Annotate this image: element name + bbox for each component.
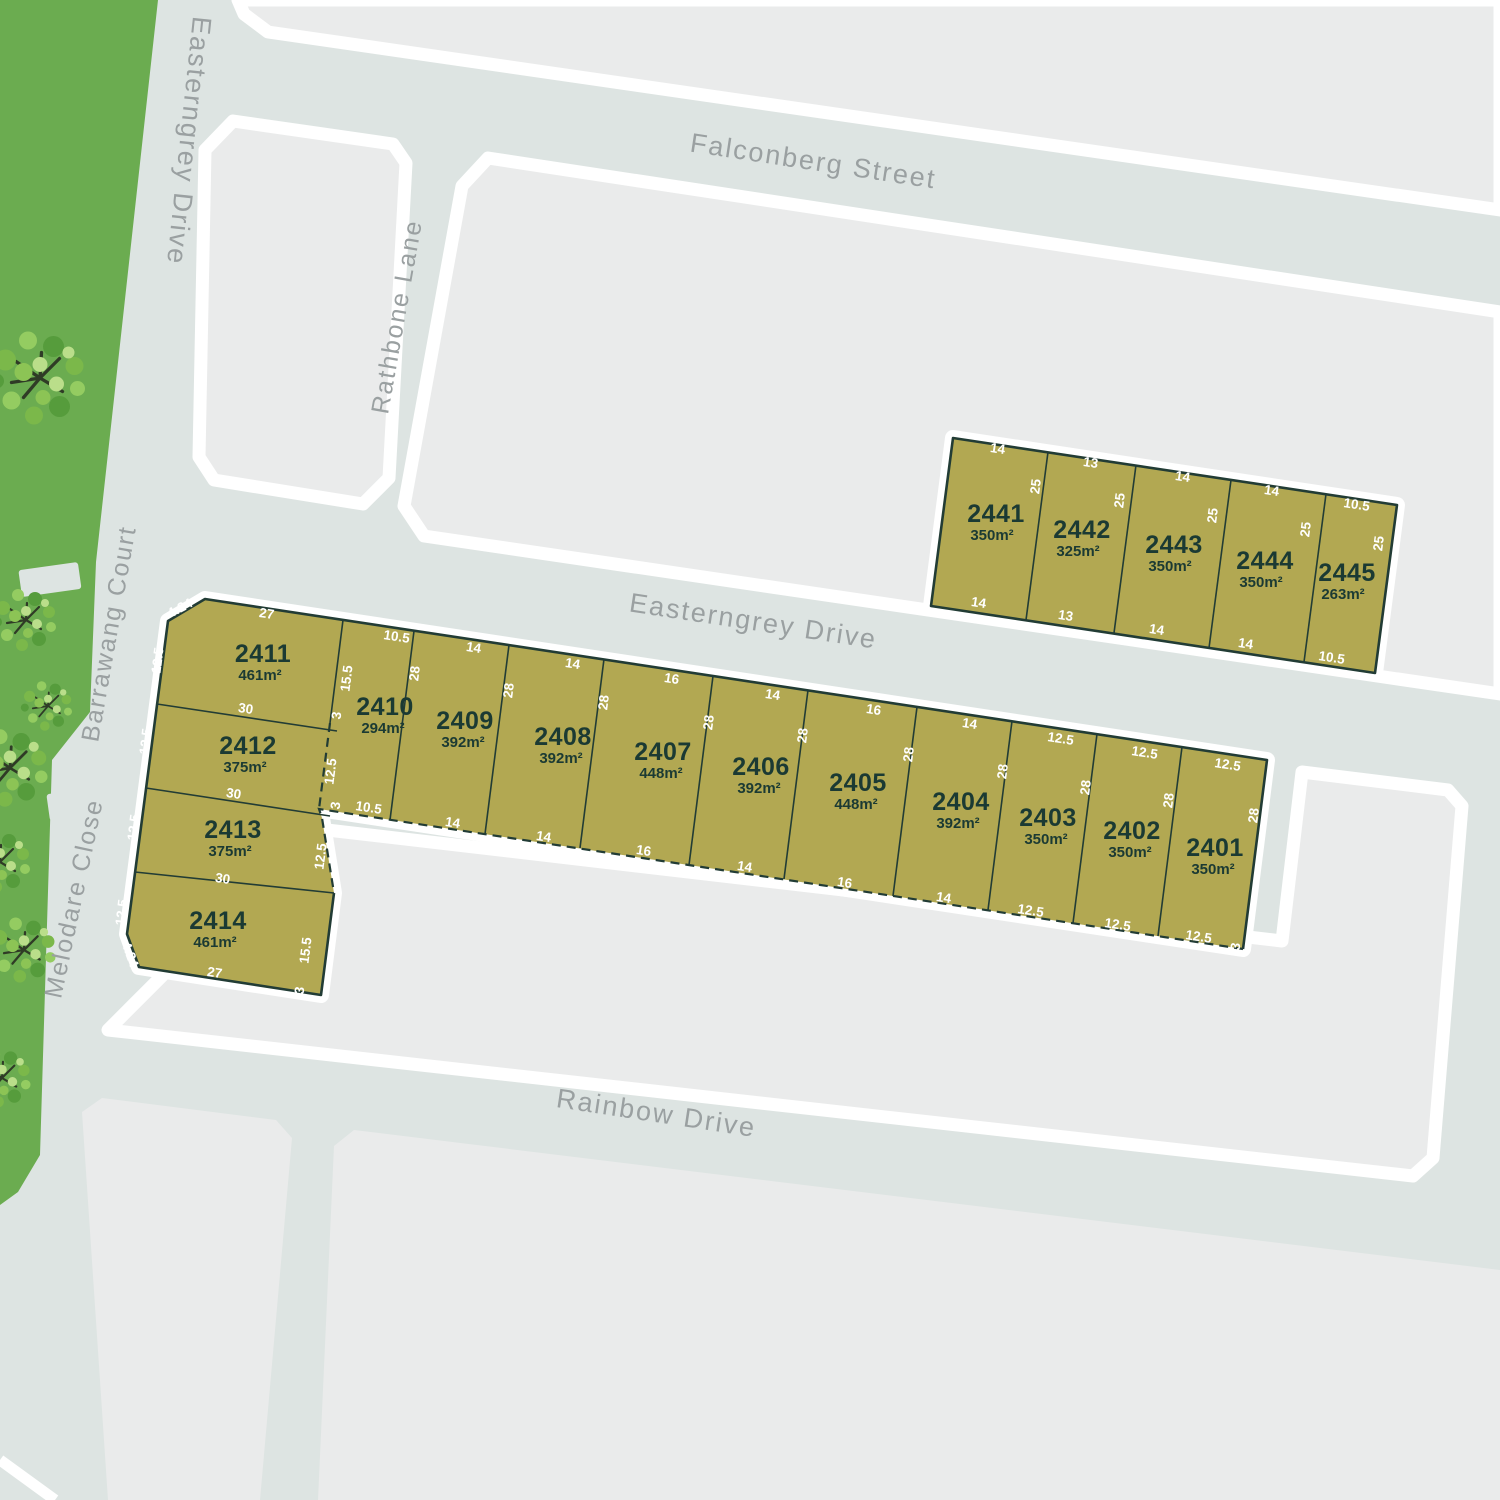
svg-text:16: 16 <box>836 874 854 891</box>
svg-text:14: 14 <box>1148 621 1166 638</box>
svg-text:14: 14 <box>736 858 754 875</box>
svg-text:14: 14 <box>961 715 979 732</box>
lot-area: 350m² <box>1108 844 1151 861</box>
svg-text:13: 13 <box>1082 454 1100 471</box>
lot-area: 350m² <box>1239 574 1282 591</box>
svg-text:14: 14 <box>764 686 782 703</box>
lot-area: 350m² <box>1191 861 1234 878</box>
svg-text:28: 28 <box>900 746 917 763</box>
lot-area: 325m² <box>1056 543 1099 560</box>
svg-text:14: 14 <box>535 828 553 845</box>
svg-text:27: 27 <box>206 964 223 981</box>
svg-text:25: 25 <box>1027 478 1044 495</box>
svg-text:14: 14 <box>1263 482 1281 499</box>
lot-area: 375m² <box>223 759 266 776</box>
lot-number: 2443 <box>1145 531 1203 559</box>
svg-text:14: 14 <box>444 814 462 831</box>
masterplan-svg: Easterngrey Drive Falconberg Street Rath… <box>0 0 1500 1500</box>
svg-text:25: 25 <box>1370 535 1387 552</box>
lot-area: 263m² <box>1321 586 1364 603</box>
lot-number: 2403 <box>1019 804 1077 832</box>
estate-masterplan-map: Easterngrey Drive Falconberg Street Rath… <box>0 0 1500 1500</box>
svg-text:14: 14 <box>1174 468 1192 485</box>
lot-number: 2401 <box>1186 834 1244 862</box>
block-easterngrey-rathbone <box>199 121 406 504</box>
lot-area: 392m² <box>936 815 979 832</box>
svg-text:14: 14 <box>465 639 483 656</box>
svg-text:25: 25 <box>1204 507 1221 524</box>
lot-area: 392m² <box>441 734 484 751</box>
lot-number: 2402 <box>1103 817 1161 845</box>
lot-number: 2406 <box>732 753 790 781</box>
svg-text:30: 30 <box>225 785 242 802</box>
lot-number: 2410 <box>356 693 414 721</box>
svg-text:14: 14 <box>564 655 582 672</box>
svg-text:28: 28 <box>500 682 517 699</box>
lot-area: 461m² <box>238 667 281 684</box>
svg-text:14: 14 <box>970 594 988 611</box>
lot-number: 2445 <box>1318 559 1376 587</box>
lot-number: 2444 <box>1236 547 1294 575</box>
lot-area: 375m² <box>208 843 251 860</box>
svg-text:14: 14 <box>1237 635 1255 652</box>
svg-text:28: 28 <box>1245 807 1262 824</box>
svg-text:14: 14 <box>935 889 953 906</box>
lot-area: 350m² <box>1024 831 1067 848</box>
lot-number: 2412 <box>219 732 277 760</box>
lot-area: 448m² <box>639 765 682 782</box>
svg-text:28: 28 <box>794 727 811 744</box>
svg-text:28: 28 <box>1160 792 1177 809</box>
lot-area: 392m² <box>539 750 582 767</box>
svg-text:30: 30 <box>214 870 231 887</box>
svg-text:28: 28 <box>406 665 423 682</box>
svg-text:27: 27 <box>258 605 275 622</box>
svg-text:28: 28 <box>1077 779 1094 796</box>
svg-text:28: 28 <box>994 763 1011 780</box>
lot-number: 2414 <box>189 907 247 935</box>
lot-number: 2409 <box>436 707 494 735</box>
svg-text:28: 28 <box>595 694 612 711</box>
lot-number: 2405 <box>829 769 887 797</box>
lot-area: 461m² <box>193 934 236 951</box>
block-bottom-left <box>82 1098 292 1500</box>
lot-number: 2408 <box>534 723 592 751</box>
lot-area: 350m² <box>970 527 1013 544</box>
lot-area: 392m² <box>737 780 780 797</box>
lot-number: 2404 <box>932 788 990 816</box>
svg-text:16: 16 <box>663 670 681 687</box>
svg-text:28: 28 <box>700 714 717 731</box>
lot-area: 448m² <box>834 796 877 813</box>
svg-text:14: 14 <box>989 440 1007 457</box>
lot-number: 2413 <box>204 816 262 844</box>
svg-text:25: 25 <box>1111 492 1128 509</box>
svg-text:16: 16 <box>635 842 653 859</box>
svg-text:25: 25 <box>1297 521 1314 538</box>
lot-number: 2407 <box>634 738 692 766</box>
lot-area: 294m² <box>361 720 404 737</box>
lot-area: 350m² <box>1148 558 1191 575</box>
svg-text:13: 13 <box>1057 607 1075 624</box>
svg-text:16: 16 <box>865 701 883 718</box>
lot-number: 2442 <box>1053 516 1111 544</box>
lot-number: 2411 <box>235 640 291 668</box>
svg-text:30: 30 <box>237 700 254 717</box>
lot-number: 2441 <box>967 500 1025 528</box>
